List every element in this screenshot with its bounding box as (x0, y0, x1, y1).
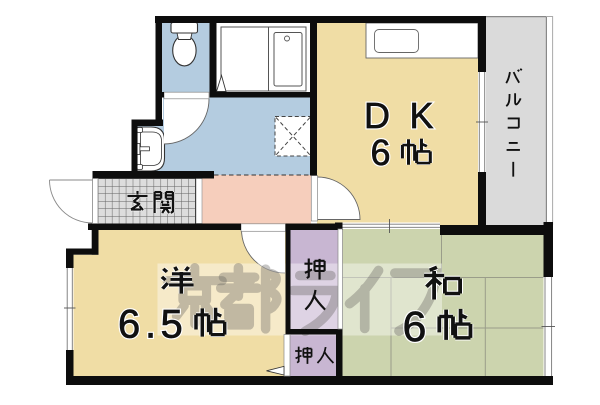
svg-text:6: 6 (118, 303, 140, 347)
svg-text:K: K (410, 95, 434, 136)
svg-text:5: 5 (161, 303, 183, 347)
svg-text:6: 6 (403, 303, 427, 351)
svg-text:D: D (364, 95, 390, 136)
svg-text:.: . (145, 303, 156, 347)
svg-text:6: 6 (371, 132, 391, 173)
